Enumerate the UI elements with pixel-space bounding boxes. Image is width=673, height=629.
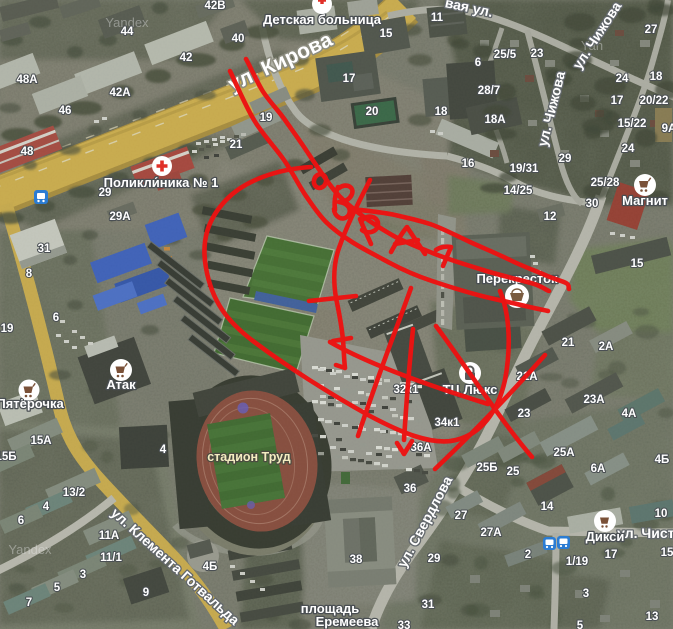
svg-text:23: 23 bbox=[518, 408, 531, 420]
svg-text:10: 10 bbox=[655, 508, 668, 520]
svg-text:18: 18 bbox=[435, 106, 448, 118]
svg-text:12: 12 bbox=[544, 211, 557, 223]
svg-text:42В: 42В bbox=[204, 0, 225, 12]
svg-text:29: 29 bbox=[428, 553, 441, 565]
svg-text:18А: 18А bbox=[484, 114, 505, 126]
svg-text:4Б: 4Б bbox=[203, 561, 218, 573]
svg-text:29: 29 bbox=[559, 153, 572, 165]
svg-text:20: 20 bbox=[366, 106, 379, 118]
svg-text:13/2: 13/2 bbox=[63, 487, 85, 499]
svg-text:33: 33 bbox=[398, 620, 411, 629]
svg-text:4А: 4А bbox=[622, 408, 637, 420]
svg-text:5: 5 bbox=[577, 620, 584, 629]
svg-text:19/31: 19/31 bbox=[510, 163, 539, 175]
svg-text:11: 11 bbox=[431, 12, 444, 24]
svg-text:Поликли́ника № 1: Поликли́ника № 1 bbox=[104, 175, 219, 190]
svg-text:25/5: 25/5 bbox=[494, 49, 517, 61]
svg-text:21: 21 bbox=[562, 337, 575, 349]
svg-text:18: 18 bbox=[650, 71, 663, 83]
svg-text:6: 6 bbox=[18, 515, 24, 527]
svg-text:ул. Чисто: ул. Чисто bbox=[617, 525, 673, 541]
svg-text:Детская больница: Детская больница bbox=[263, 12, 382, 27]
svg-text:16: 16 bbox=[462, 158, 475, 170]
svg-text:25/28: 25/28 bbox=[591, 177, 620, 189]
svg-text:Еремеева: Еремеева bbox=[316, 614, 380, 629]
svg-text:15Б: 15Б bbox=[0, 451, 17, 463]
svg-text:15/22: 15/22 bbox=[618, 118, 647, 130]
svg-text:2: 2 bbox=[525, 549, 531, 561]
svg-text:38: 38 bbox=[350, 554, 363, 566]
svg-text:31: 31 bbox=[422, 599, 435, 611]
svg-text:15: 15 bbox=[631, 258, 644, 270]
svg-text:34к1: 34к1 bbox=[435, 417, 461, 429]
svg-text:17: 17 bbox=[343, 73, 356, 85]
svg-text:9А: 9А bbox=[662, 123, 673, 135]
svg-text:20/22: 20/22 bbox=[640, 95, 669, 107]
svg-text:17: 17 bbox=[605, 549, 618, 561]
svg-text:8: 8 bbox=[26, 268, 33, 280]
svg-text:1/19: 1/19 bbox=[566, 556, 588, 568]
svg-text:11А: 11А bbox=[99, 530, 119, 542]
svg-text:3: 3 bbox=[80, 569, 86, 581]
svg-text:48А: 48А bbox=[16, 74, 37, 86]
svg-text:42А: 42А bbox=[109, 87, 130, 99]
svg-text:13: 13 bbox=[646, 611, 659, 623]
svg-text:29А: 29А bbox=[109, 211, 130, 223]
svg-text:36А: 36А bbox=[410, 442, 431, 454]
svg-text:17: 17 bbox=[611, 95, 624, 107]
svg-text:27: 27 bbox=[645, 24, 658, 36]
svg-text:27А: 27А bbox=[480, 527, 501, 539]
svg-text:15: 15 bbox=[380, 28, 393, 40]
svg-text:14/25: 14/25 bbox=[504, 185, 533, 197]
svg-text:11/1: 11/1 bbox=[100, 552, 122, 564]
svg-text:стадион Труд: стадион Труд bbox=[207, 450, 291, 464]
svg-text:23: 23 bbox=[531, 48, 544, 60]
svg-text:4: 4 bbox=[43, 501, 50, 513]
svg-text:31: 31 bbox=[38, 243, 51, 255]
svg-text:25: 25 bbox=[507, 466, 520, 478]
svg-text:28/7: 28/7 bbox=[478, 85, 500, 97]
svg-text:42: 42 bbox=[180, 52, 193, 64]
svg-text:ТЦ Люкс: ТЦ Люкс bbox=[443, 382, 498, 397]
svg-text:5: 5 bbox=[54, 582, 61, 594]
svg-text:24: 24 bbox=[616, 73, 629, 85]
svg-text:21: 21 bbox=[230, 139, 243, 151]
svg-text:9: 9 bbox=[143, 587, 149, 599]
svg-text:14: 14 bbox=[541, 501, 554, 513]
svg-text:7: 7 bbox=[26, 597, 32, 609]
svg-text:40: 40 bbox=[232, 33, 245, 45]
svg-text:25Б: 25Б bbox=[476, 462, 497, 474]
svg-text:2А: 2А bbox=[599, 341, 614, 353]
svg-text:6: 6 bbox=[475, 57, 481, 69]
svg-text:30: 30 bbox=[586, 198, 599, 210]
svg-text:4: 4 bbox=[160, 444, 167, 456]
svg-text:4Б: 4Б bbox=[655, 454, 670, 466]
svg-text:25А: 25А bbox=[553, 447, 574, 459]
svg-text:19: 19 bbox=[260, 112, 273, 124]
svg-text:46: 46 bbox=[59, 105, 72, 117]
svg-text:15А: 15А bbox=[30, 435, 51, 447]
svg-text:24: 24 bbox=[622, 143, 635, 155]
svg-text:6: 6 bbox=[53, 312, 59, 324]
svg-text:23А: 23А bbox=[583, 394, 604, 406]
svg-text:15: 15 bbox=[661, 547, 673, 559]
svg-text:19: 19 bbox=[1, 323, 14, 335]
svg-text:27: 27 bbox=[455, 510, 468, 522]
svg-text:36: 36 bbox=[404, 483, 417, 495]
svg-text:3: 3 bbox=[583, 588, 589, 600]
svg-text:Yandex: Yandex bbox=[8, 542, 52, 557]
svg-text:48: 48 bbox=[21, 146, 34, 158]
svg-text:44: 44 bbox=[121, 26, 134, 38]
svg-text:6А: 6А bbox=[591, 463, 606, 475]
svg-text:29: 29 bbox=[99, 187, 112, 199]
